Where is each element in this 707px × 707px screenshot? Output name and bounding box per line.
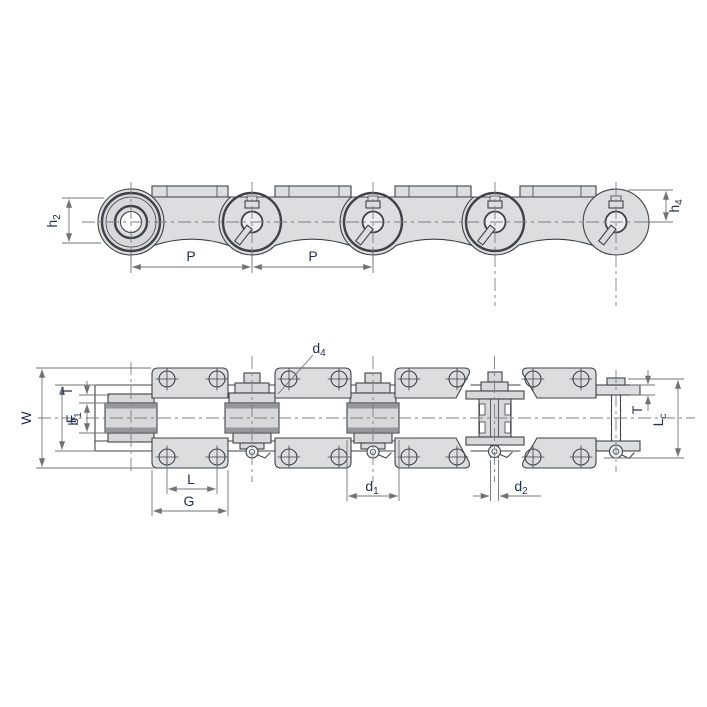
label-Lc: Lc: [650, 414, 669, 427]
bottom-view: W F T b1 d4 L: [18, 340, 695, 516]
attachment-tabs-side: [152, 186, 596, 197]
label-h4: h4: [666, 199, 685, 213]
label-G: G: [184, 493, 195, 509]
tab-bend-ticks: [167, 186, 581, 197]
dimension-pitch: P P: [131, 248, 373, 273]
label-L: L: [187, 471, 195, 487]
label-pitch-1: P: [186, 248, 195, 264]
label-W: W: [18, 411, 34, 425]
dimension-b1: b1: [65, 405, 87, 432]
conveyor-chain-technical-drawing: h2 h4 P P: [0, 0, 707, 707]
label-pitch-2: P: [308, 248, 317, 264]
chain-drawing-canvas: h2 h4 P P: [0, 0, 707, 707]
label-d4: d4: [312, 340, 326, 359]
label-d2: d2: [514, 478, 528, 497]
label-T-left: T: [59, 386, 75, 395]
top-view: h2 h4 P P: [44, 182, 685, 306]
label-b1: b1: [65, 412, 84, 426]
label-h2: h2: [44, 214, 63, 228]
label-d1: d1: [365, 478, 379, 497]
label-T-right: T: [629, 405, 645, 414]
dimension-h2: h2: [44, 198, 104, 243]
